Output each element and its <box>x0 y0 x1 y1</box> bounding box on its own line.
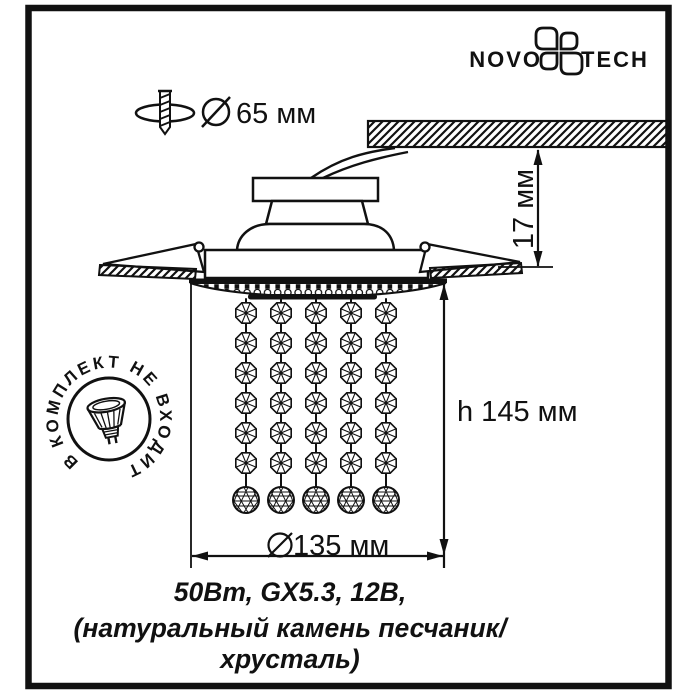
brand-name-left: NOVO <box>469 47 542 72</box>
crystal-strand <box>303 299 329 513</box>
fixture-diagram-canvas: NOVO TECH 65 мм <box>0 0 700 700</box>
dimension-protrusion: 17 мм <box>498 149 553 267</box>
arrow-up-icon <box>534 149 543 165</box>
crystal-band <box>189 279 447 300</box>
brand-name-right: TECH <box>581 47 649 72</box>
trim-ring <box>205 250 428 278</box>
arrow-down-icon <box>534 251 543 267</box>
caption-line-2: (натуральный камень песчаник/ <box>74 613 510 643</box>
arrow-up-icon <box>440 284 449 300</box>
crystal-strand <box>268 299 294 513</box>
cutout-spec: 65 мм <box>136 91 316 134</box>
crystal-strand <box>338 299 364 513</box>
diagram-page: NOVO TECH 65 мм <box>0 0 700 700</box>
clip-pivot-right <box>421 243 430 252</box>
lamp-housing-dome <box>237 224 394 250</box>
caption-line-1: 50Вт, GX5.3, 12В, <box>174 577 406 607</box>
screw-icon <box>158 91 172 134</box>
cutout-diameter-label: 65 мм <box>236 98 316 130</box>
brand-logo: NOVO TECH <box>469 28 649 74</box>
crystal-strand <box>233 299 259 513</box>
diameter-dim-label: 135 мм <box>293 530 389 562</box>
ceiling-slab <box>368 121 668 147</box>
caption-line-3: хрусталь) <box>218 644 360 674</box>
power-wire <box>311 148 408 178</box>
crystal-strand <box>373 299 399 513</box>
protrusion-dim-label: 17 мм <box>508 169 540 249</box>
clip-pivot-left <box>195 243 204 252</box>
diameter-symbol-icon <box>268 533 292 557</box>
arrow-down-icon <box>440 539 449 555</box>
fixture-neck <box>266 201 368 224</box>
terminal-box <box>253 178 378 201</box>
fixture-body <box>99 178 522 279</box>
band-bar <box>248 294 377 300</box>
product-caption: 50Вт, GX5.3, 12В, (натуральный камень пе… <box>74 577 510 674</box>
arrow-right-icon <box>427 552 443 561</box>
dimension-diameter: 135 мм <box>192 530 443 562</box>
novotech-flower-icon <box>536 28 582 74</box>
crystal-strands <box>233 299 399 513</box>
diameter-symbol-icon <box>202 97 230 127</box>
height-dim-label: h 145 мм <box>457 396 578 428</box>
arrow-left-icon <box>192 552 208 561</box>
not-included-stamp: В КОМПЛЕКТ НЕ ВХОДИТ <box>42 352 175 481</box>
